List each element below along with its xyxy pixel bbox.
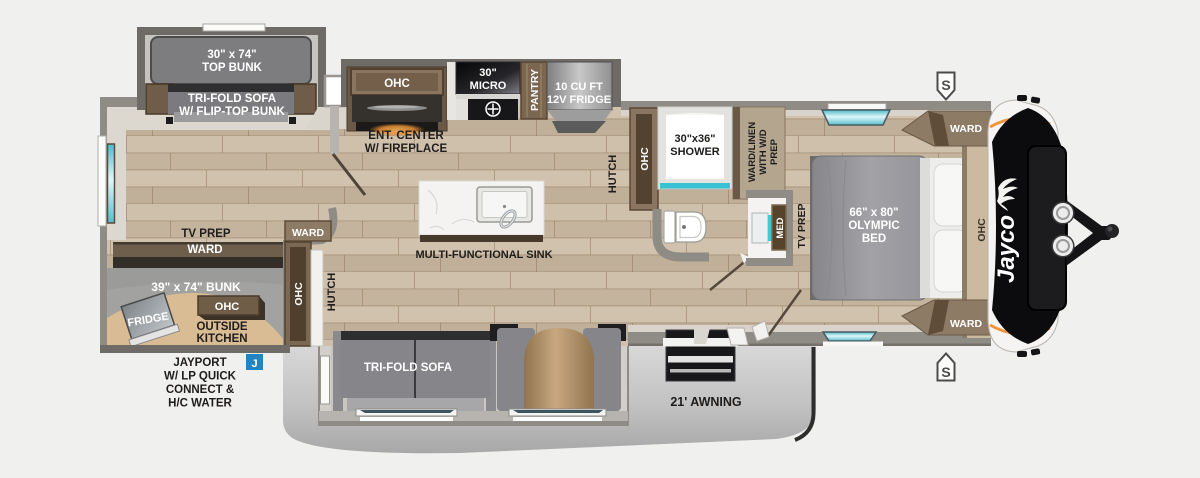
svg-text:H/C WATER: H/C WATER	[168, 398, 232, 410]
svg-text:WITH W/D: WITH W/D	[758, 129, 769, 175]
svg-text:OHC: OHC	[293, 282, 305, 306]
svg-text:OHC: OHC	[639, 147, 651, 171]
svg-text:12V FRIDGE: 12V FRIDGE	[547, 94, 611, 106]
svg-text:MED: MED	[775, 217, 786, 238]
svg-text:39" x 74" BUNK: 39" x 74" BUNK	[151, 280, 241, 294]
svg-text:HUTCH: HUTCH	[326, 273, 338, 312]
svg-text:OHC: OHC	[215, 301, 240, 313]
svg-text:SHOWER: SHOWER	[670, 146, 720, 158]
svg-text:WARD: WARD	[187, 244, 222, 256]
svg-text:OUTSIDE: OUTSIDE	[196, 321, 247, 333]
svg-text:TRI-FOLD SOFA: TRI-FOLD SOFA	[188, 93, 276, 105]
svg-text:W/ FIREPLACE: W/ FIREPLACE	[365, 143, 448, 155]
svg-text:HUTCH: HUTCH	[607, 155, 619, 194]
svg-text:10 CU FT: 10 CU FT	[555, 81, 603, 93]
svg-text:W/ FLIP-TOP BUNK: W/ FLIP-TOP BUNK	[179, 106, 285, 118]
svg-text:S: S	[941, 364, 950, 380]
svg-text:30" x 74": 30" x 74"	[207, 49, 256, 61]
svg-text:WARD: WARD	[292, 227, 324, 239]
svg-text:TV PREP: TV PREP	[796, 204, 808, 249]
svg-text:OHC: OHC	[384, 78, 410, 90]
svg-text:W/ LP QUICK: W/ LP QUICK	[164, 371, 237, 383]
svg-text:ENT. CENTER: ENT. CENTER	[368, 130, 444, 142]
svg-text:BED: BED	[862, 233, 886, 245]
svg-text:TV PREP: TV PREP	[181, 228, 231, 240]
svg-text:PREP: PREP	[769, 138, 780, 165]
svg-text:21' AWNING: 21' AWNING	[670, 395, 741, 409]
svg-text:WARD: WARD	[950, 123, 982, 135]
svg-text:WARD/LINEN: WARD/LINEN	[747, 122, 758, 182]
svg-text:OLYMPIC: OLYMPIC	[848, 220, 899, 232]
svg-text:MULTI-FUNCTIONAL SINK: MULTI-FUNCTIONAL SINK	[415, 249, 552, 261]
svg-text:TOP BUNK: TOP BUNK	[202, 62, 262, 74]
svg-text:OHC: OHC	[976, 218, 988, 242]
svg-text:TRI-FOLD SOFA: TRI-FOLD SOFA	[364, 362, 452, 374]
svg-text:S: S	[941, 77, 950, 93]
svg-text:PANTRY: PANTRY	[529, 69, 541, 111]
svg-text:Jayco: Jayco	[993, 215, 1020, 283]
svg-text:CONNECT &: CONNECT &	[166, 384, 234, 396]
svg-text:66" x 80": 66" x 80"	[849, 207, 898, 219]
svg-text:30"x36": 30"x36"	[674, 133, 715, 145]
svg-text:30": 30"	[479, 67, 496, 79]
svg-text:MICRO: MICRO	[470, 80, 507, 92]
svg-text:KITCHEN: KITCHEN	[196, 333, 247, 345]
svg-text:JAYPORT: JAYPORT	[173, 357, 226, 369]
svg-text:J: J	[251, 358, 257, 370]
svg-text:WARD: WARD	[950, 318, 982, 330]
